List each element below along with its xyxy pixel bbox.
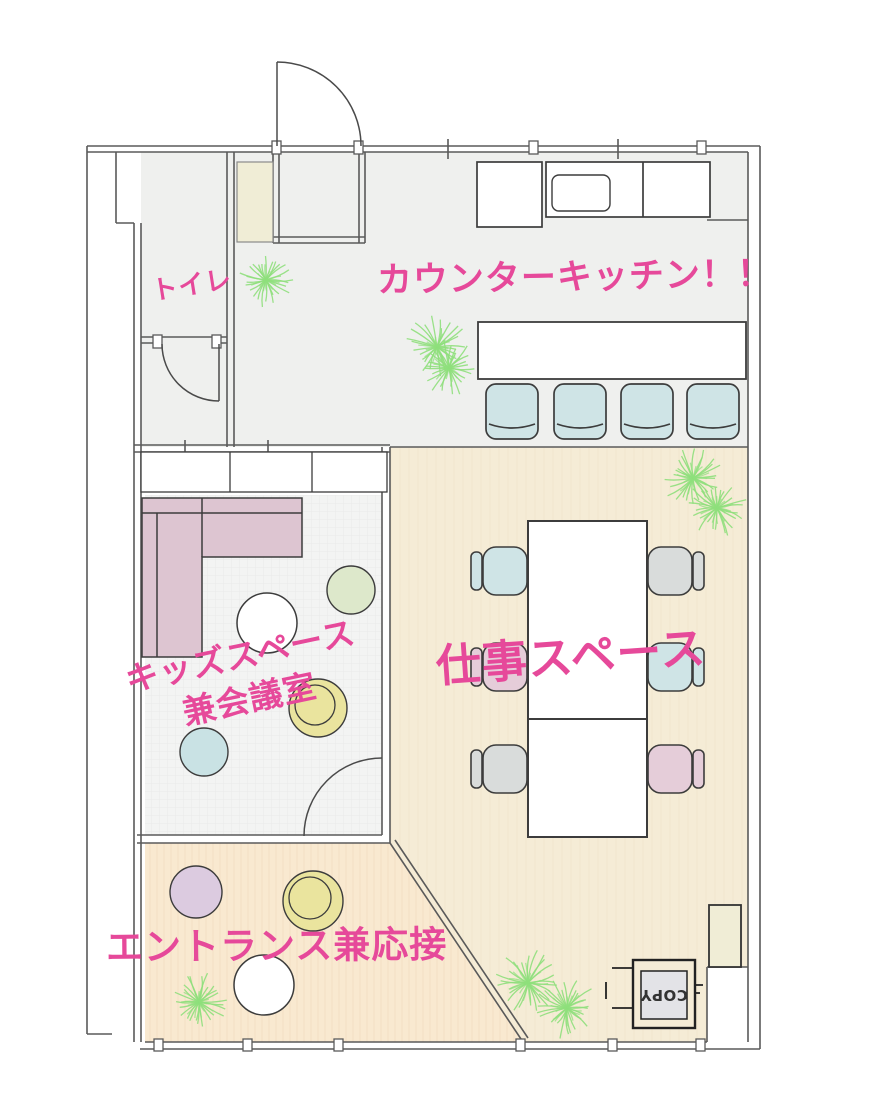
main-entry-door <box>277 62 361 146</box>
office-chair <box>648 547 704 595</box>
kitchen-label: カウンターキッチン！！ <box>377 255 774 300</box>
floor-cushion-purple <box>170 866 222 918</box>
floor-cushion-blue <box>180 728 228 776</box>
office-chair <box>648 745 704 793</box>
kids-wall-cabinets <box>141 452 387 492</box>
counter-stool <box>687 384 739 439</box>
office-chair <box>471 547 527 595</box>
floor-plan: カウンターキッチン！！ トイレ キッズスペース 兼会議室 仕事スペース エントラ… <box>0 0 870 1114</box>
office-chair <box>471 745 527 793</box>
kitchen-sink <box>552 175 610 211</box>
storage-shelf <box>709 905 741 967</box>
counter-stool <box>486 384 538 439</box>
kitchen-counter <box>478 322 746 379</box>
counter-stool <box>554 384 606 439</box>
entrance-label: エントランス兼応接 <box>106 925 448 969</box>
closet <box>237 162 273 242</box>
counter-stool <box>621 384 673 439</box>
floor-cushion-yellow <box>283 871 343 931</box>
kitchen-cabinet <box>477 162 542 227</box>
copier-label: COPY <box>641 971 687 1019</box>
